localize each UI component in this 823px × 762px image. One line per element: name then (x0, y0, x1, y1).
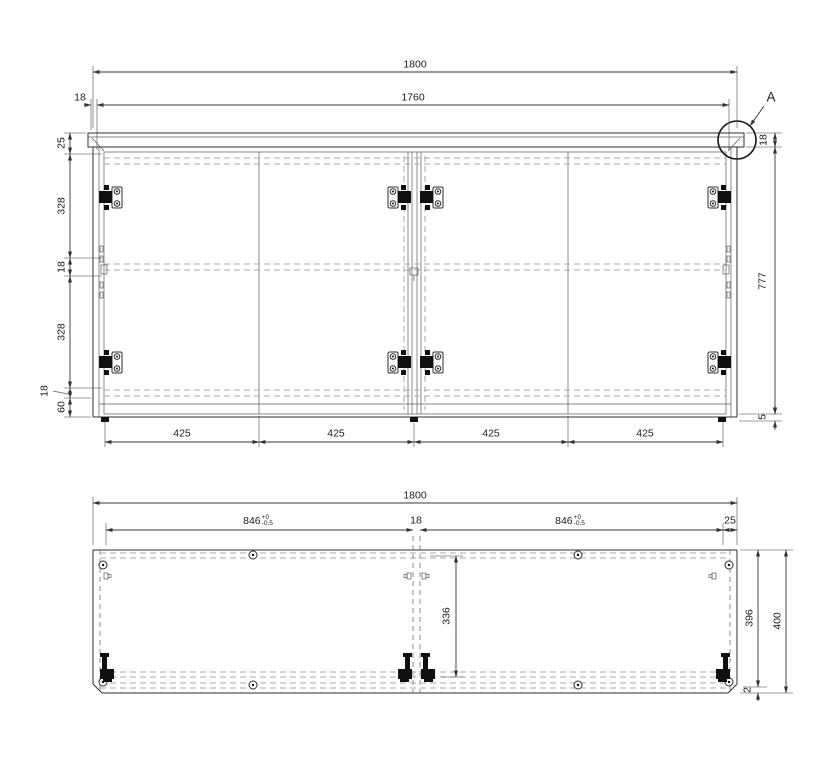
screw-icon (104, 573, 111, 579)
dim-plan-divider-thickness: 18 (410, 516, 422, 527)
dim-front-plinth: 60 (57, 401, 68, 413)
dim-door-width-3: 425 (482, 429, 500, 440)
dim-front-mid-shelf: 18 (57, 261, 68, 273)
detail-marker-label: A (766, 92, 775, 103)
hinge-icon (398, 653, 412, 682)
dim-plan-overall-depth: 400 (773, 612, 784, 630)
hinge-icon (100, 653, 114, 682)
dim-plan-inner-depth: 336 (442, 607, 453, 625)
hinge-icon (388, 350, 411, 375)
dim-door-width-2: 425 (327, 429, 345, 440)
screw-icon (422, 573, 429, 579)
front-view (88, 106, 764, 422)
hinge-icon (420, 185, 443, 210)
dim-front-upper-section: 328 (57, 197, 68, 215)
dim-front-opening-width: 1760 (401, 93, 424, 104)
dim-door-width-1: 425 (173, 429, 191, 440)
dim-plan-overall-width: 1800 (403, 491, 426, 502)
dim-front-side-thickness: 18 (74, 93, 86, 104)
dim-front-overall-height: 777 (758, 272, 769, 290)
plan-view (93, 536, 737, 693)
dim-front-bottom-panel: 18 (40, 385, 51, 397)
dim-plan-carcass-depth: 396 (745, 609, 756, 627)
hinge-icon (388, 185, 411, 210)
dim-front-top-clearance: 25 (57, 137, 68, 149)
dim-plan-right-bay: 846+0-0.5 (555, 515, 585, 527)
cabinet-technical-drawing (0, 0, 823, 762)
hinge-icon (99, 185, 122, 210)
dim-front-lower-section: 328 (57, 323, 68, 341)
dim-door-width-4: 425 (636, 429, 654, 440)
top-panel (88, 133, 744, 147)
hinge-icon (421, 653, 435, 682)
hinge-icon (420, 350, 443, 375)
cad-drawing-canvas: 1800 1760 18 A 25 328 18 328 18 60 18 77… (0, 0, 823, 762)
screw-icon (404, 573, 411, 579)
hinge-icon (99, 350, 122, 375)
cam-fittings (99, 551, 733, 689)
dim-plan-front-reveal: 2 (743, 687, 754, 693)
dim-front-overall-width: 1800 (403, 60, 426, 71)
foot (410, 417, 418, 422)
hinge-icon (716, 653, 730, 682)
hinge-icon (708, 350, 731, 375)
dim-front-top-panel-thickness: 18 (759, 134, 770, 146)
hinge-icon (708, 185, 731, 210)
plan-view-dimensions (93, 497, 793, 701)
dim-plan-left-bay: 846+0-0.5 (243, 515, 273, 527)
dim-front-bottom-reveal: 5 (758, 414, 769, 420)
foot (718, 417, 726, 422)
screw-icon (709, 573, 716, 579)
door-area (104, 152, 726, 414)
dim-plan-right-offset: 25 (724, 516, 736, 527)
